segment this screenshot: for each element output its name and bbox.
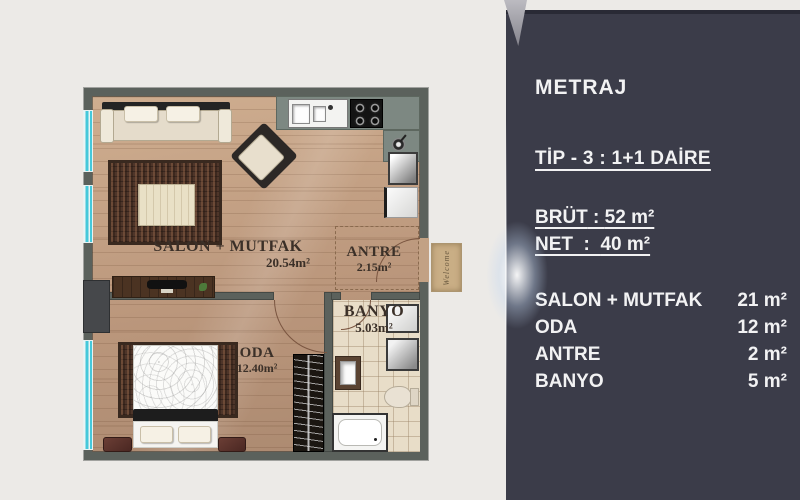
label-salon-name: SALON + MUTFAK (153, 238, 302, 255)
spec-brut: BRÜT : 52 m² (535, 204, 654, 231)
washing-machine (386, 338, 419, 371)
spec-net-sep: : (573, 234, 600, 255)
bathroom-sink (335, 356, 361, 390)
label-salon: SALON + MUTFAK 20.54m² (140, 238, 316, 271)
bed-pillow-right (178, 426, 211, 443)
table-row: ODA 12 m² (535, 314, 787, 341)
nightstand-right (218, 437, 246, 452)
dresser (83, 280, 110, 333)
room-area: 2 m² (748, 341, 787, 368)
welcome-mat: Welcome (431, 243, 462, 292)
cooktop (350, 99, 383, 128)
wall-banyo-stub (331, 292, 341, 300)
floor-plan: SALON + MUTFAK 20.54m² ANTRE 2.15m² BANY… (84, 88, 428, 460)
window-salon-bottom (83, 185, 93, 243)
label-banyo: BANYO 5.03m² (332, 303, 416, 336)
label-antre-name: ANTRE (346, 244, 401, 260)
label-banyo-area: 5.03m² (332, 321, 416, 336)
apartment-type-line: TİP - 3 : 1+1 DAİRE (535, 148, 711, 170)
label-salon-area: 20.54m² (140, 256, 316, 271)
armchair-cushion (237, 133, 285, 181)
room-area: 21 m² (737, 287, 787, 314)
sofa-armrest-right (218, 109, 232, 143)
room-name: ODA (535, 314, 577, 341)
table-row: SALON + MUTFAK 21 m² (535, 287, 787, 314)
coffee-table (138, 184, 195, 226)
toilet-tank (410, 388, 419, 406)
plant-icon (199, 283, 207, 291)
info-panel: METRAJ TİP - 3 : 1+1 DAİRE BRÜT : 52 m² … (506, 10, 800, 500)
room-name: ANTRE (535, 341, 600, 368)
table-row: ANTRE 2 m² (535, 341, 787, 368)
armchair (230, 122, 298, 190)
room-area-table: SALON + MUTFAK 21 m² ODA 12 m² ANTRE 2 m… (535, 287, 787, 395)
room-area: 5 m² (748, 368, 787, 395)
welcome-mat-text: Welcome (442, 250, 451, 286)
label-antre: ANTRE 2.15m² (332, 244, 416, 275)
tv (147, 280, 187, 289)
spec-brut-value: 52 m² (605, 207, 655, 228)
sofa-armrest-left (100, 109, 114, 143)
bathtub-drain (374, 438, 377, 441)
panel-title: METRAJ (535, 76, 627, 100)
label-banyo-name: BANYO (344, 303, 404, 320)
pan-icon (392, 138, 405, 151)
label-oda-area: 12.40m² (224, 362, 290, 376)
entrance-door-gap (419, 238, 429, 282)
tv-console (112, 276, 215, 298)
window-salon-top (83, 110, 93, 172)
label-antre-area: 2.15m² (332, 261, 416, 275)
bathtub (332, 413, 388, 452)
label-oda: ODA 12.40m² (224, 345, 290, 376)
sink-basin-left (292, 104, 310, 124)
toilet (384, 386, 412, 408)
nightstand-left (103, 437, 132, 452)
bathtub-inner (338, 419, 382, 446)
sofa-pillow-right (166, 106, 200, 122)
spec-brut-sep: : (588, 207, 605, 228)
sink-basin-right (313, 106, 326, 122)
sofa-pillow-left (124, 106, 158, 122)
spec-net-label: NET (535, 234, 573, 255)
bed-mattress (133, 345, 218, 411)
closet-rack (293, 354, 324, 452)
room-name: BANYO (535, 368, 604, 395)
wall-banyo-top (371, 292, 420, 300)
bathroom-sink-basin (340, 361, 356, 385)
area-specs: BRÜT : 52 m² NET : 40 m² (535, 204, 654, 258)
table-row: BANYO 5 m² (535, 368, 787, 395)
faucet-icon (328, 105, 333, 110)
window-oda (83, 340, 93, 450)
fridge (388, 152, 418, 185)
spec-brut-label: BRÜT (535, 207, 588, 228)
spec-net: NET : 40 m² (535, 231, 654, 258)
spec-net-value: 40 m² (600, 234, 650, 255)
kitchen-sink (288, 99, 348, 128)
kitchen-cabinet (384, 187, 418, 218)
room-area: 12 m² (737, 314, 787, 341)
bed-pillow-left (140, 426, 173, 443)
room-name: SALON + MUTFAK (535, 287, 702, 314)
label-oda-name: ODA (240, 345, 275, 361)
